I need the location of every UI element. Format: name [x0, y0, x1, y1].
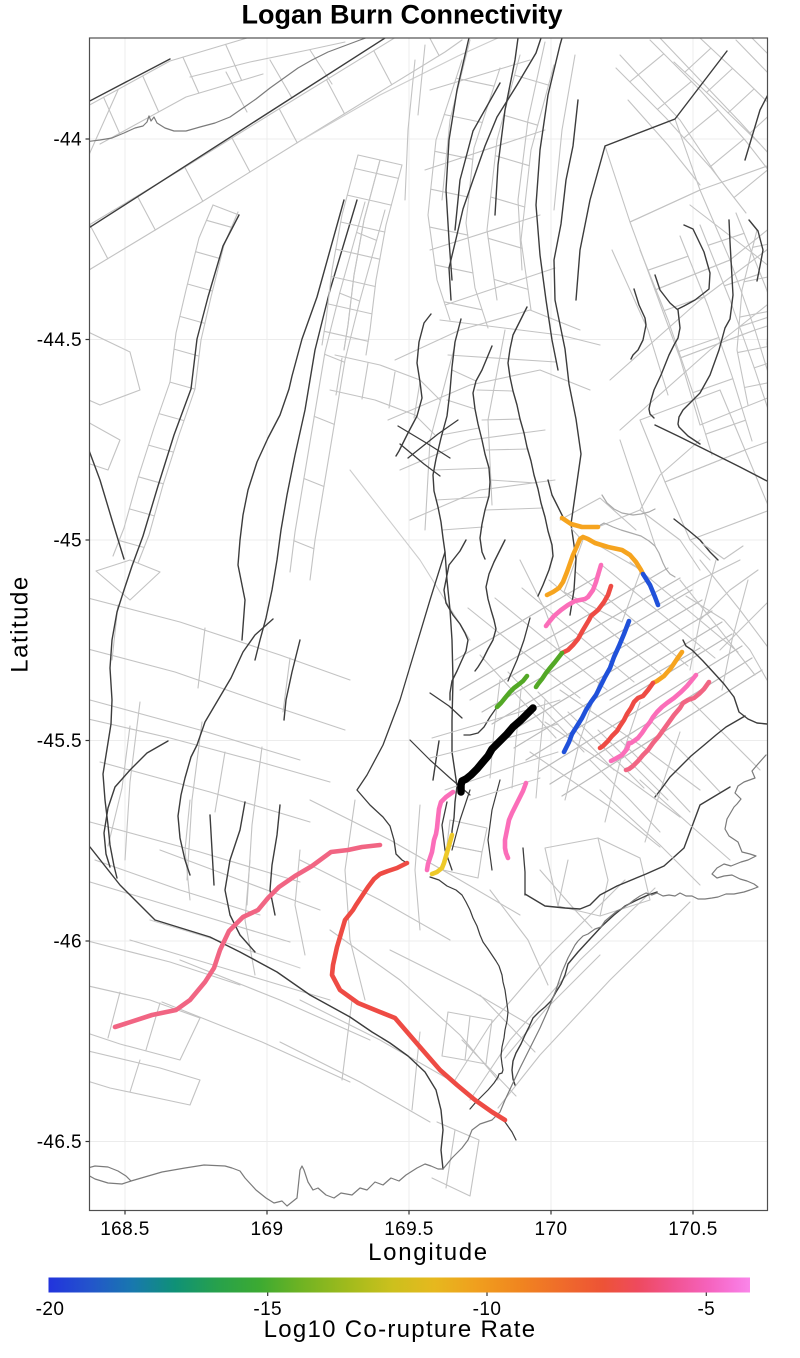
svg-text:Latitude: Latitude [7, 575, 34, 672]
svg-text:169: 169 [251, 1219, 284, 1240]
svg-text:-44.5: -44.5 [37, 330, 82, 351]
svg-text:170: 170 [535, 1219, 568, 1240]
svg-text:170.5: 170.5 [668, 1219, 718, 1240]
svg-text:168.5: 168.5 [100, 1219, 150, 1240]
svg-text:-45.5: -45.5 [37, 731, 82, 752]
svg-text:-45: -45 [53, 531, 82, 552]
svg-text:Longitude: Longitude [368, 1239, 489, 1266]
svg-text:-46: -46 [53, 932, 82, 953]
svg-text:-20: -20 [36, 1299, 65, 1320]
svg-text:Logan Burn Connectivity: Logan Burn Connectivity [241, 0, 562, 30]
svg-text:-5: -5 [697, 1299, 715, 1320]
svg-text:-44: -44 [53, 130, 82, 151]
svg-text:Log10 Co-rupture Rate: Log10 Co-rupture Rate [264, 1316, 537, 1343]
svg-text:169.5: 169.5 [384, 1219, 434, 1240]
svg-text:-46.5: -46.5 [37, 1132, 82, 1153]
